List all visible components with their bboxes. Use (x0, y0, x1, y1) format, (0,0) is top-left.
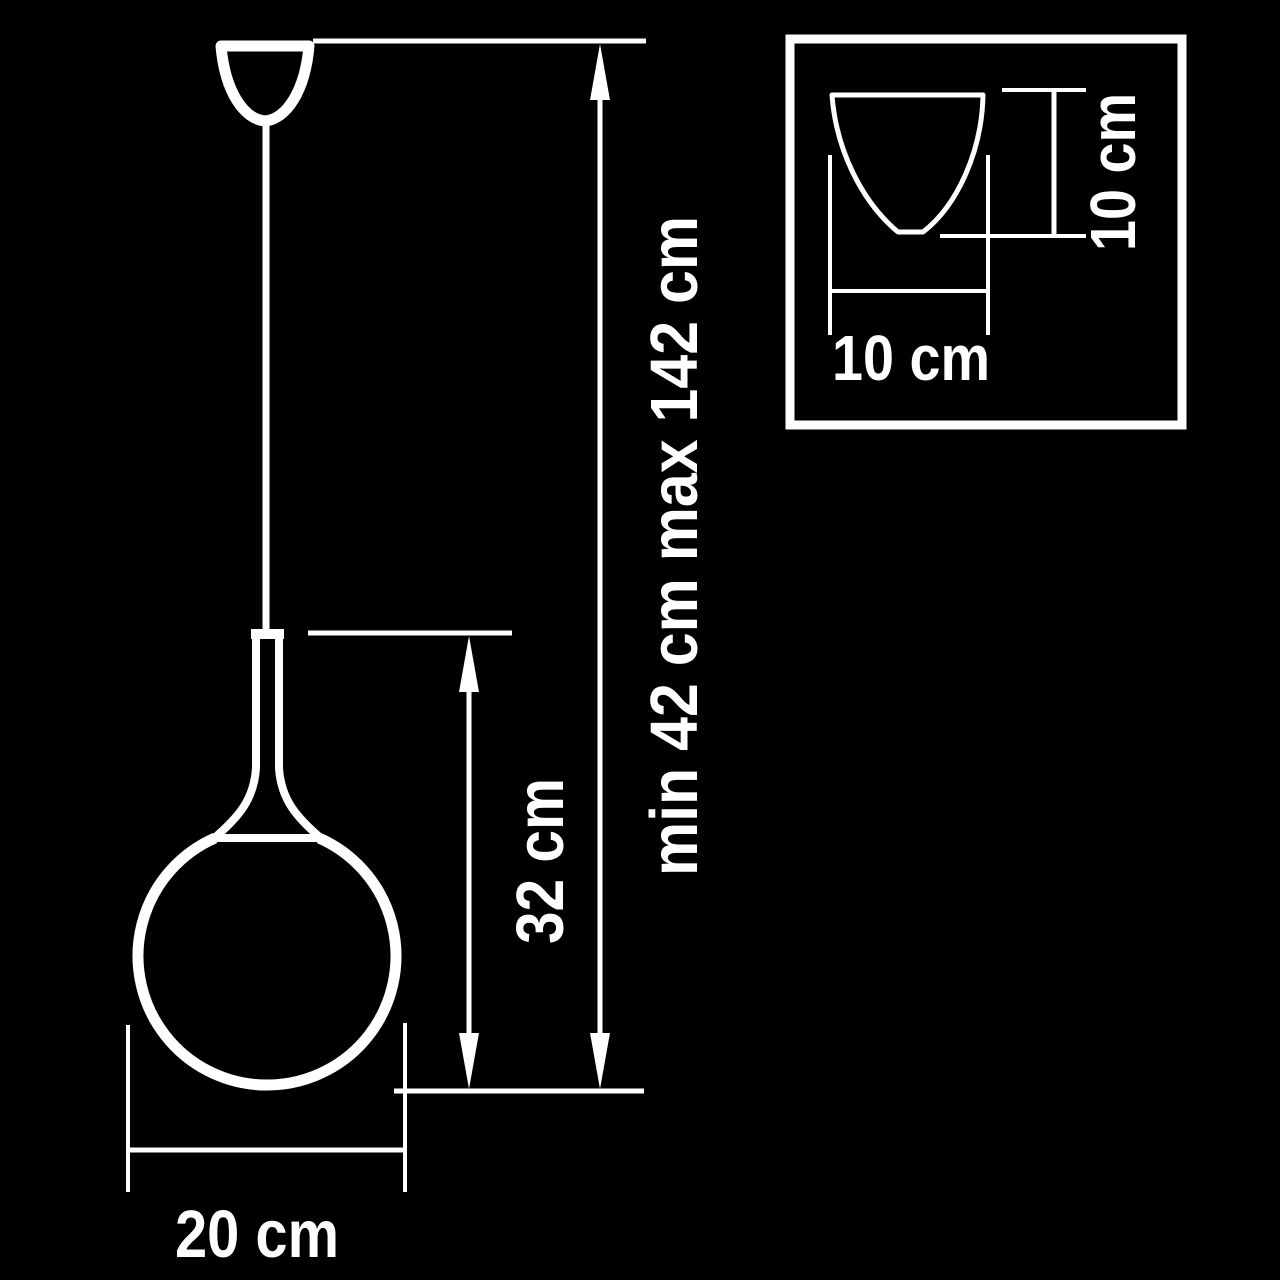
shade-height-label: 32 cm (503, 778, 578, 944)
dimension-drawing-canvas: min 42 cm max 142 cm 32 cm 20 cm (0, 0, 1280, 1280)
inset-height-label: 10 cm (1077, 93, 1149, 251)
globe-diameter-label: 20 cm (175, 1197, 339, 1272)
inset-width-label: 10 cm (832, 322, 990, 394)
pendant-lamp-diagram: min 42 cm max 142 cm 32 cm 20 cm (0, 0, 1280, 1280)
overall-height-label: min 42 cm max 142 cm (637, 216, 712, 876)
